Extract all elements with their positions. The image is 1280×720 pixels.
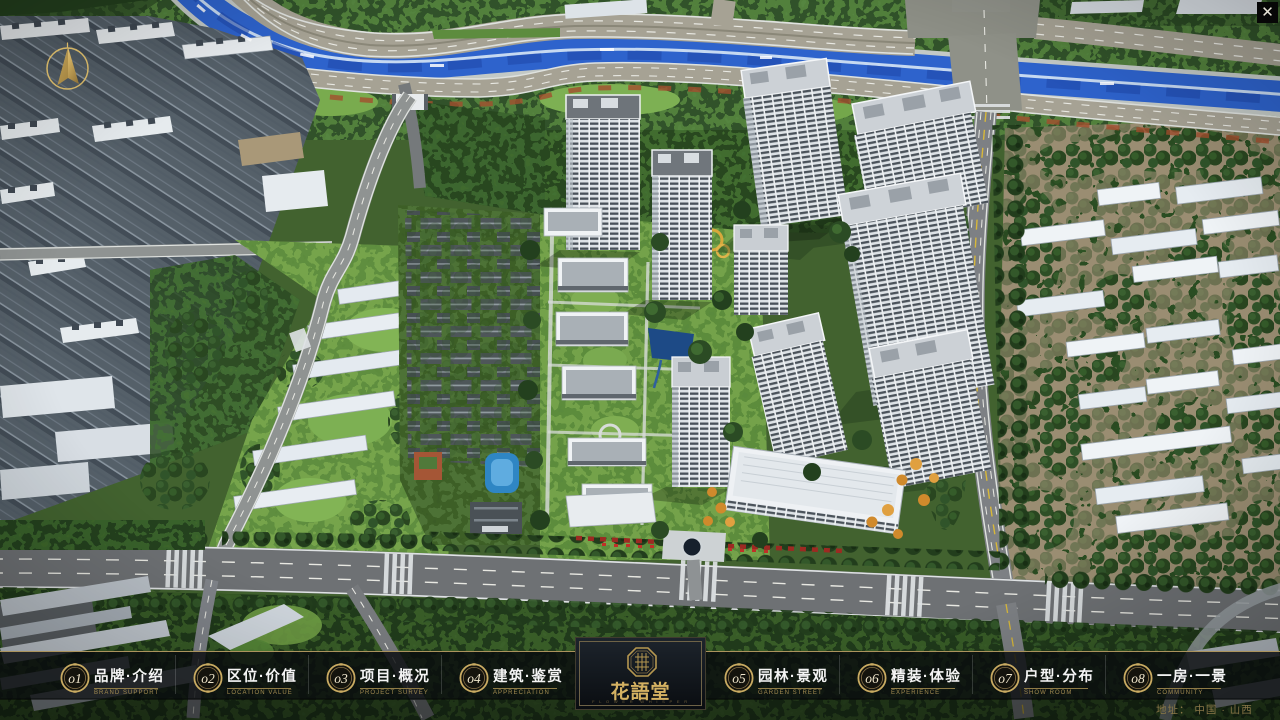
svg-text:o2: o2 [201,671,215,686]
svg-text:o6: o6 [865,671,879,686]
svg-text:o8: o8 [1131,671,1145,686]
svg-text:o3: o3 [334,671,348,686]
svg-text:o1: o1 [68,671,82,686]
svg-text:o7: o7 [998,671,1013,686]
svg-text:o4: o4 [467,671,481,686]
svg-text:o5: o5 [732,671,746,686]
